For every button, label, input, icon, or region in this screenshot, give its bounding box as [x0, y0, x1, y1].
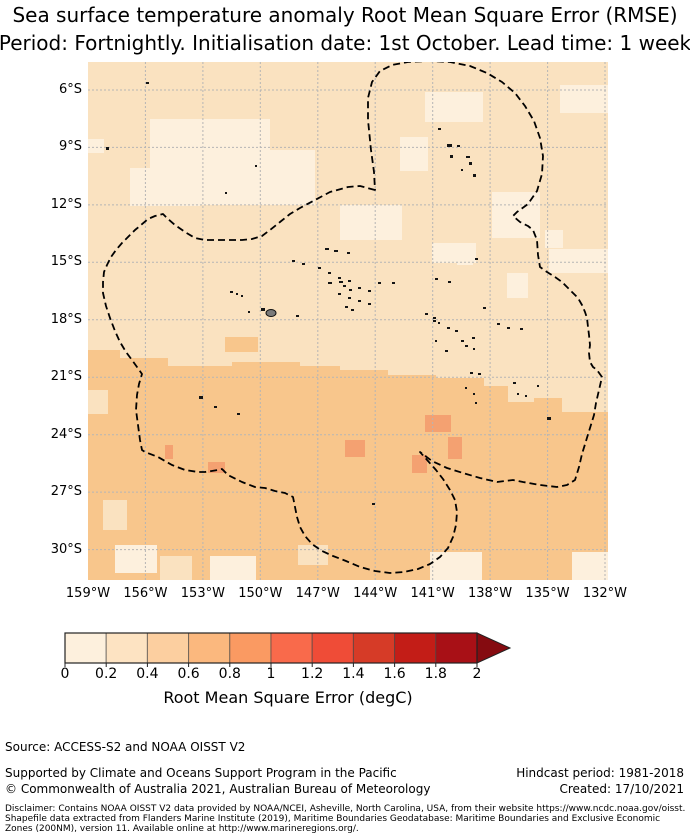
hindcast-period-text: Hindcast period: 1981-2018	[516, 766, 684, 780]
colorbar-segment	[65, 633, 106, 663]
colorbar-tick-label: 1.6	[373, 666, 417, 682]
colorbar-tick-label: 0.2	[84, 666, 128, 682]
figure-root: Sea surface temperature anomaly Root Mea…	[0, 0, 690, 839]
colorbar-label: Root Mean Square Error (degC)	[65, 688, 511, 707]
colorbar-segment	[271, 633, 312, 663]
colorbar-segment	[189, 633, 230, 663]
disclaimer-line2: Shapefile data extracted from Flanders M…	[5, 814, 660, 824]
colorbar-segment	[106, 633, 147, 663]
colorbar-segment	[353, 633, 394, 663]
created-date-text: Created: 17/10/2021	[559, 782, 684, 796]
colorbar-tick-label: 0.8	[208, 666, 252, 682]
colorbar-segment	[436, 633, 477, 663]
colorbar-segment	[312, 633, 353, 663]
supported-text: Supported by Climate and Oceans Support …	[5, 766, 397, 780]
copyright-text: © Commonwealth of Australia 2021, Austra…	[5, 782, 430, 796]
disclaimer-line3: Zones (200NM), version 11. Available onl…	[5, 824, 359, 834]
colorbar-tick-label: 1	[249, 666, 293, 682]
colorbar-tick-label: 0.4	[125, 666, 169, 682]
colorbar-tick-label: 0	[43, 666, 87, 682]
disclaimer-line1: Disclaimer: Contains NOAA OISST V2 data …	[5, 804, 685, 814]
colorbar-tick-label: 1.2	[290, 666, 334, 682]
colorbar-segment	[147, 633, 188, 663]
colorbar-extend-arrow	[477, 633, 510, 663]
colorbar-tick-label: 2	[455, 666, 499, 682]
colorbar-tick-label: 0.6	[167, 666, 211, 682]
colorbar	[0, 0, 690, 720]
colorbar-tick-label: 1.4	[331, 666, 375, 682]
colorbar-tick-label: 1.8	[414, 666, 458, 682]
source-text: Source: ACCESS-S2 and NOAA OISST V2	[5, 740, 245, 754]
colorbar-segment	[395, 633, 436, 663]
colorbar-segment	[230, 633, 271, 663]
